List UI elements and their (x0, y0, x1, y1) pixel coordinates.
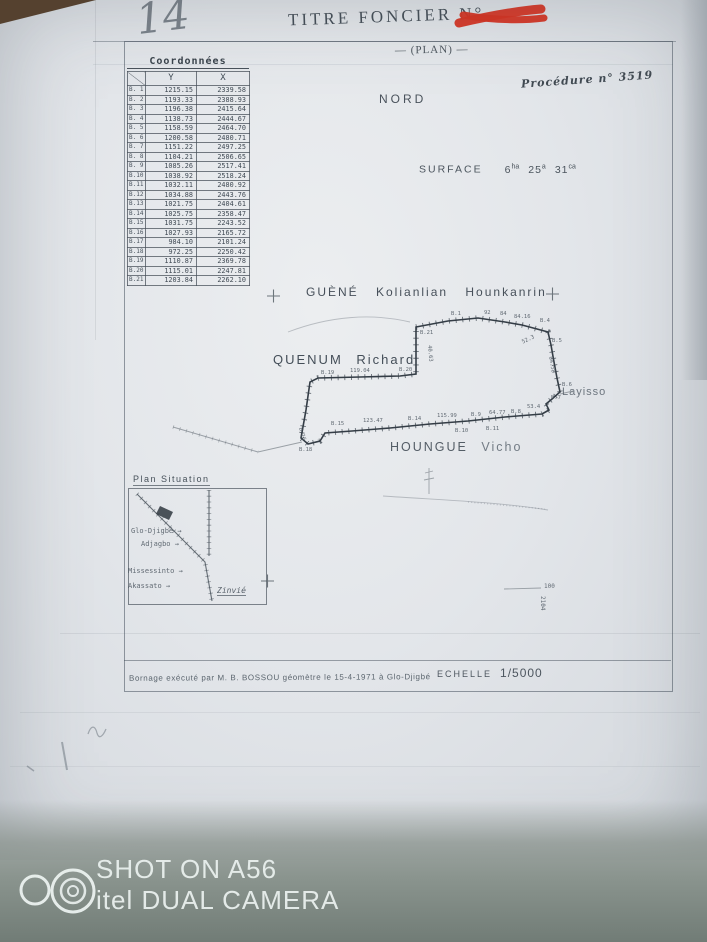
plan-annotation: B.10 (455, 428, 468, 434)
cell-y: 1158.59 (146, 124, 197, 134)
table-row: B.131021.752404.61 (128, 200, 250, 210)
cell-x: 2388.93 (197, 95, 250, 105)
surface-label: SURFACE (419, 164, 483, 176)
coordinates-table: Coordonnées Y X B. 11215.152339.58B. 211… (127, 56, 249, 286)
dual-lens-icon (18, 866, 96, 918)
cell-y: 1200.58 (146, 133, 197, 143)
cell-y: 1031.75 (146, 219, 197, 229)
table-row: B.161027.932165.72 (128, 228, 250, 238)
watermark-text: SHOT ON A56 itel DUAL CAMERA (96, 854, 339, 916)
plan-annotation: 92 (484, 310, 491, 316)
cell-id: B.15 (128, 219, 146, 229)
cell-x: 2243.52 (197, 219, 250, 229)
cell-x: 2480.71 (197, 133, 250, 143)
plan-annotation: B.8 (511, 409, 521, 415)
table-row: B.191110.872369.78 (128, 257, 250, 267)
page-title: TITRE FONCIER N° (288, 4, 485, 31)
paper-sheet: 14 TITRE FONCIER N° — (PLAN) — Procédure… (0, 0, 707, 860)
plan-annotation: B.5 (552, 338, 562, 344)
plan-annotation: 119.04 (350, 368, 370, 374)
cell-id: B. 2 (128, 95, 146, 105)
cell-x: 2165.72 (197, 228, 250, 238)
handwritten-page-number: 14 (133, 0, 192, 44)
plan-annotation: 115.99 (437, 413, 457, 419)
table-body: B. 11215.152339.58B. 21193.332388.93B. 3… (128, 86, 250, 286)
fold-line (95, 0, 96, 340)
surface-ca-value: 31 (555, 164, 569, 176)
column-header-y: Y (146, 72, 197, 86)
cell-id: B. 3 (128, 105, 146, 115)
table-row: B. 31196.382415.64 (128, 105, 250, 115)
cell-x: 2369.78 (197, 257, 250, 267)
cell-y: 1027.93 (146, 228, 197, 238)
cell-id: B.12 (128, 190, 146, 200)
cell-id: B. 6 (128, 133, 146, 143)
cell-x: 2480.92 (197, 181, 250, 191)
neighbor-south-firstname: Vicho (481, 440, 522, 454)
pencil-squiggle (88, 727, 106, 737)
plan-annotation: B.6 (562, 382, 572, 388)
neighbor-north-label: GUÈNÉ Kolianlian Hounkanrin (306, 285, 547, 299)
table-row: B.101038.922518.24 (128, 171, 250, 181)
surface-a-value: 25 (528, 164, 542, 176)
plan-annotation: 53.4 (527, 404, 540, 410)
plan-annotation: 64.77 (489, 410, 506, 416)
table-row: B. 41138.732444.67 (128, 114, 250, 124)
plan-annotation: B.21 (420, 330, 433, 336)
cell-y: 984.10 (146, 238, 197, 248)
surface-ha-unit: ha (511, 163, 519, 170)
cell-x: 2250.42 (197, 247, 250, 257)
plan-annotation: 123.47 (363, 418, 383, 424)
cell-x: 2415.64 (197, 105, 250, 115)
table-row: B.17984.102101.24 (128, 238, 250, 248)
cell-x: 2464.70 (197, 124, 250, 134)
cell-y: 1034.88 (146, 190, 197, 200)
cell-y: 972.25 (146, 247, 197, 257)
neighbor-west-label: QUENUM Richard (273, 352, 415, 367)
plan-annotation: Glo-Djigbé → (131, 527, 182, 535)
surface-line: SURFACE6ha25a31ca (419, 163, 576, 176)
plan-annotation: B.9 (471, 412, 481, 418)
table-row: B.111032.112480.92 (128, 181, 250, 191)
camera-watermark: SHOT ON A56 itel DUAL CAMERA (0, 848, 707, 942)
cell-id: B.11 (128, 181, 146, 191)
plan-annotation: B.4 (540, 318, 550, 324)
plan-annotation: Missessinto → (128, 567, 183, 575)
cell-y: 1203.84 (146, 276, 197, 286)
scale-label: ECHELLE (437, 669, 492, 679)
inset-title: Plan Situation (133, 474, 210, 486)
plan-annotation: B.11 (486, 426, 499, 432)
scale-line: ECHELLE1/5000 (437, 666, 543, 680)
plan-annotation: 2104 (539, 596, 546, 610)
cell-id: B. 7 (128, 143, 146, 153)
cell-x: 2339.58 (197, 86, 250, 96)
cell-x: 2518.24 (197, 171, 250, 181)
table-row: B. 81104.212506.65 (128, 152, 250, 162)
north-label: NORD (379, 92, 426, 106)
cell-y: 1038.92 (146, 171, 197, 181)
cell-id: B.17 (128, 238, 146, 248)
table-row: B. 71151.222497.25 (128, 143, 250, 153)
surface-ca-unit: ca (569, 163, 576, 170)
table-row: B. 21193.332388.93 (128, 95, 250, 105)
table-row: B.211203.842262.10 (128, 276, 250, 286)
corner-cell (128, 72, 146, 86)
cell-id: B.16 (128, 228, 146, 238)
cell-x: 2444.67 (197, 114, 250, 124)
fold-line (20, 712, 700, 713)
plan-annotation: B.7 (551, 395, 561, 401)
cell-id: B. 4 (128, 114, 146, 124)
cell-x: 2506.65 (197, 152, 250, 162)
cell-y: 1104.21 (146, 152, 197, 162)
cell-y: 1085.26 (146, 162, 197, 172)
cell-y: 1110.87 (146, 257, 197, 267)
table-header-row: Y X (128, 72, 250, 86)
scale-value: 1/5000 (500, 666, 543, 680)
plan-annotation: Zinvié (217, 586, 246, 596)
cell-x: 2262.10 (197, 276, 250, 286)
plan-annotation: 84.16 (514, 314, 531, 320)
plan-annotation: B.15 (331, 421, 344, 427)
cell-x: 2358.47 (197, 209, 250, 219)
table-row: B.151031.752243.52 (128, 219, 250, 229)
plan-annotation: 84 (500, 311, 507, 317)
cell-x: 2101.24 (197, 238, 250, 248)
cell-id: B.10 (128, 171, 146, 181)
table-row: B.121034.882443.76 (128, 190, 250, 200)
cell-id: B.13 (128, 200, 146, 210)
frame-footer-divider (124, 660, 671, 661)
plan-annotation: B.18 (299, 447, 312, 453)
table-row: B. 11215.152339.58 (128, 86, 250, 96)
cell-id: B. 9 (128, 162, 146, 172)
surface-a-unit: a (542, 163, 546, 170)
document-photo: 14 TITRE FONCIER N° — (PLAN) — Procédure… (0, 0, 707, 942)
plan-annotation: Akassato → (128, 582, 170, 590)
cell-id: B. 5 (128, 124, 146, 134)
table-row: B.201115.012247.81 (128, 266, 250, 276)
cell-y: 1138.73 (146, 114, 197, 124)
table-row: B.18972.252250.42 (128, 247, 250, 257)
cell-y: 1193.33 (146, 95, 197, 105)
coordinates-table-title: Coordonnées (127, 56, 249, 69)
cell-id: B.19 (128, 257, 146, 267)
table-row: B. 51158.592464.70 (128, 124, 250, 134)
cell-y: 1115.01 (146, 266, 197, 276)
cell-id: B.18 (128, 247, 146, 257)
cell-y: 1032.11 (146, 181, 197, 191)
plan-annotation: B.1 (451, 311, 461, 317)
column-header-x: X (197, 72, 250, 86)
table-row: B. 61200.582480.71 (128, 133, 250, 143)
cell-x: 2517.41 (197, 162, 250, 172)
plan-annotation: B.14 (408, 416, 421, 422)
cell-x: 2443.76 (197, 190, 250, 200)
coordinates-grid: Y X B. 11215.152339.58B. 21193.332388.93… (127, 71, 250, 286)
cell-x: 2497.25 (197, 143, 250, 153)
neighbor-south-label: HOUNGUE Vicho (390, 440, 522, 454)
cell-y: 1215.15 (146, 86, 197, 96)
watermark-line2: itel DUAL CAMERA (96, 885, 339, 916)
cell-y: 1021.75 (146, 200, 197, 210)
cell-y: 1025.75 (146, 209, 197, 219)
bornage-note: Bornage exécuté par M. B. BOSSOU géomètr… (129, 672, 431, 683)
cell-id: B. 8 (128, 152, 146, 162)
cell-y: 1151.22 (146, 143, 197, 153)
plan-annotation: B.20 (399, 367, 412, 373)
cell-x: 2247.81 (197, 266, 250, 276)
plan-annotation: B.19 (321, 370, 334, 376)
neighbor-south-surname: HOUNGUE (390, 440, 468, 454)
cell-id: B.21 (128, 276, 146, 286)
table-row: B.141025.752358.47 (128, 209, 250, 219)
watermark-line1: SHOT ON A56 (96, 854, 339, 885)
cell-id: B.20 (128, 266, 146, 276)
plan-annotation: Adjagbo → (141, 540, 179, 548)
paper-edge-shadow (681, 0, 707, 380)
cell-y: 1196.38 (146, 105, 197, 115)
cell-id: B. 1 (128, 86, 146, 96)
table-row: B. 91085.262517.41 (128, 162, 250, 172)
plan-annotation: 100 (544, 583, 555, 590)
fold-line (10, 766, 700, 767)
cell-id: B.14 (128, 209, 146, 219)
cell-x: 2404.61 (197, 200, 250, 210)
